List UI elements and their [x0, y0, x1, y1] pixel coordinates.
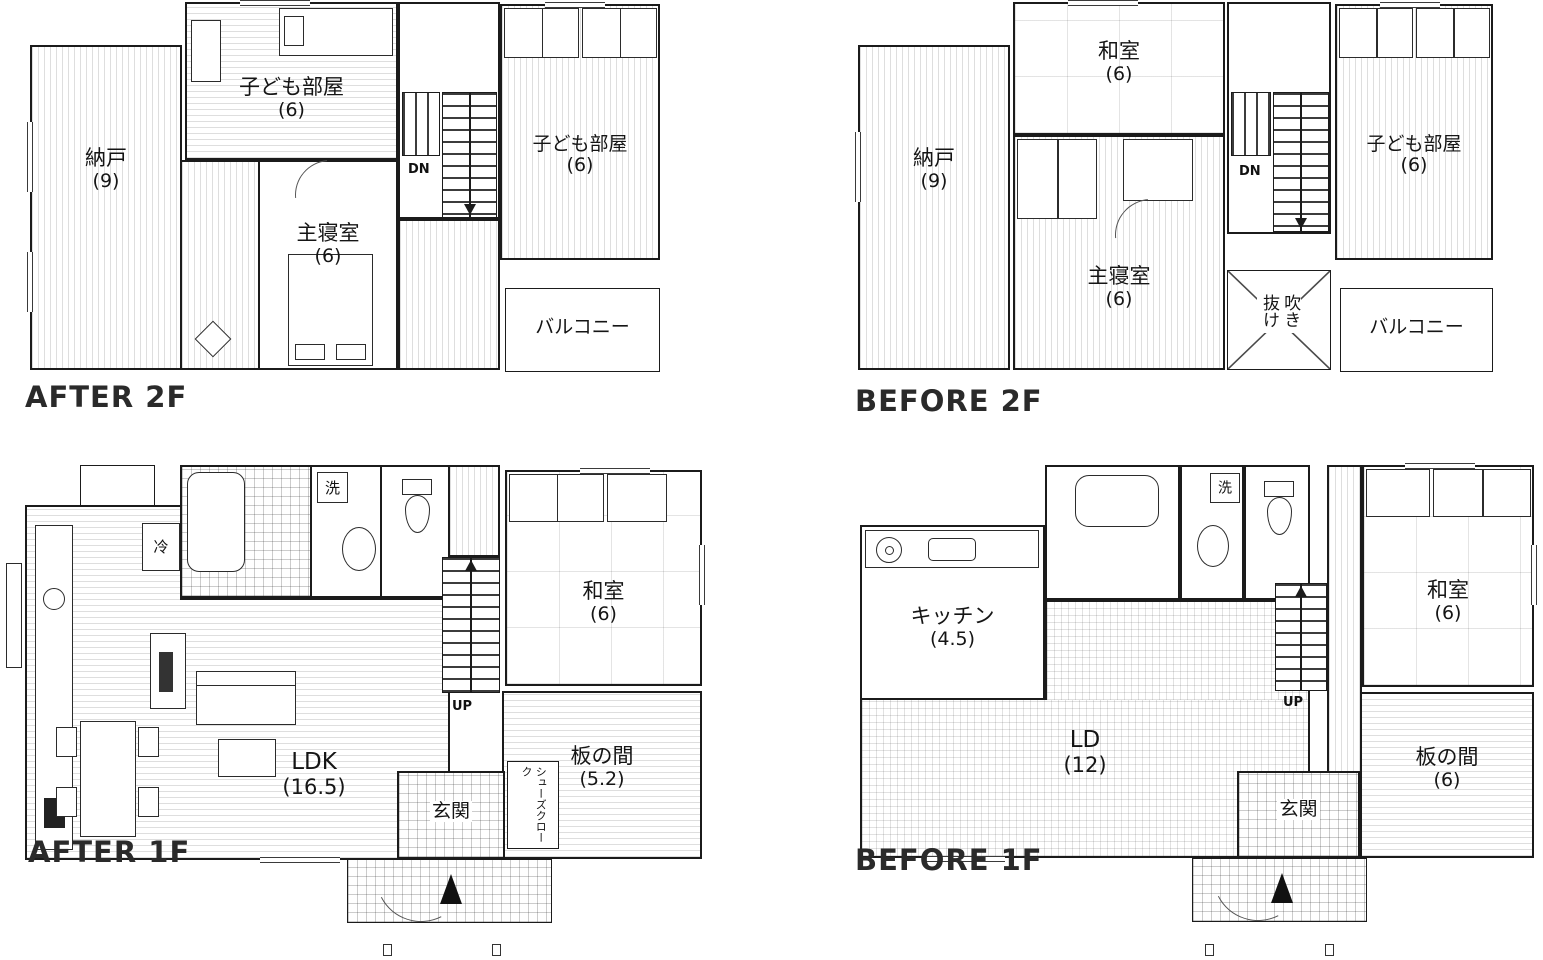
- room-name: LD: [1070, 728, 1101, 754]
- hallway: [448, 465, 500, 557]
- stool: [195, 321, 232, 358]
- balcony: バルコニー: [1340, 288, 1493, 372]
- room-master-bedroom: 主寝室 (6): [258, 160, 398, 370]
- room-kids-room-right: 子ども部屋 (6): [500, 4, 660, 260]
- stair-rail: [469, 93, 471, 217]
- plan-caption-after-1f: AFTER 1F: [28, 835, 190, 869]
- room-size: (12): [1063, 754, 1106, 778]
- bathtub: [187, 472, 245, 572]
- kitchen-sink: [928, 538, 976, 561]
- tv-board: [150, 633, 186, 709]
- room-name: バルコニー: [1369, 317, 1464, 338]
- room-label: LD (12): [862, 728, 1308, 777]
- hallway: [398, 219, 500, 370]
- room-size: (6): [1434, 770, 1461, 791]
- closet: [1433, 469, 1531, 517]
- stairs-direction-label: UP: [452, 699, 472, 714]
- room-name: キッチン: [911, 605, 995, 629]
- room-label: バルコニー: [1341, 317, 1492, 338]
- washing-machine-label: 洗: [318, 477, 347, 498]
- room-size: (6): [315, 246, 342, 267]
- pillow: [336, 344, 366, 360]
- stairs-direction-label: UP: [1283, 695, 1303, 710]
- stairs: [442, 92, 497, 218]
- stairs: [442, 557, 500, 693]
- room-label: 子ども部屋 (6): [187, 76, 396, 121]
- stairs: [402, 92, 440, 156]
- room-wood-floor: 板の間 (6): [1360, 692, 1534, 858]
- window: [1068, 0, 1138, 6]
- shoe-closet: シューズクローク: [507, 761, 559, 849]
- window: [1405, 463, 1475, 469]
- room-japanese-room: 和室 (6): [1362, 465, 1534, 687]
- washing-machine: 洗: [1210, 473, 1240, 503]
- closet: [1017, 139, 1097, 219]
- toilet-room: [1244, 465, 1310, 600]
- toilet-bowl: [405, 495, 430, 533]
- site-marker: [383, 944, 392, 956]
- room-name: 板の間: [1416, 746, 1479, 770]
- closet: [607, 474, 667, 522]
- room-name: 板の間: [571, 745, 634, 769]
- stairs: [1273, 92, 1329, 232]
- room-name: 子ども部屋: [239, 76, 344, 100]
- refrigerator: 冷: [142, 523, 180, 571]
- coffee-table: [218, 739, 276, 777]
- room-label: 吹き抜け: [1228, 289, 1330, 333]
- closet: [582, 8, 657, 58]
- stairs: [1275, 583, 1327, 691]
- desk: [191, 20, 221, 82]
- room-size: (4.5): [930, 629, 975, 650]
- room-living-dining: [1045, 600, 1310, 700]
- window: [580, 468, 650, 474]
- shoe-closet-label: シューズクローク: [519, 766, 548, 846]
- stairwell: DN: [398, 2, 500, 219]
- kitchen-sink: [43, 588, 65, 610]
- room-label: 納戸 (9): [32, 147, 180, 192]
- toilet-bowl: [1267, 497, 1292, 535]
- room-label: 板の間 (6): [1362, 746, 1532, 791]
- closet: [1339, 8, 1413, 58]
- room-name: 納戸: [85, 147, 127, 171]
- plan-caption-after-2f: AFTER 2F: [25, 380, 187, 414]
- floor-plan-after-1f: 洗 LDK (16.5) 冷 UP: [20, 465, 720, 960]
- room-name: 和室: [1427, 579, 1469, 603]
- toilet-room: [380, 465, 450, 598]
- room-label: 和室 (6): [1364, 579, 1532, 624]
- room-kids-room-top: 子ども部屋 (6): [185, 2, 398, 160]
- room-label: 主寝室 (6): [1015, 265, 1223, 310]
- kitchen-counter: [865, 530, 1039, 568]
- room-label: 主寝室 (6): [260, 222, 396, 267]
- room-size: (9): [921, 171, 948, 192]
- entrance-porch: [347, 859, 552, 923]
- room-name: 子ども部屋: [1366, 134, 1461, 155]
- room-master-bedroom: 主寝室 (6): [1013, 135, 1225, 370]
- window: [855, 132, 861, 202]
- window: [27, 252, 33, 312]
- floor-plan-after-2f: 納戸 (9) 子ども部屋 (6) 主寝室 (6) DN: [25, 2, 665, 378]
- room-size: (6): [1106, 64, 1133, 85]
- room-name: 子ども部屋: [532, 134, 627, 155]
- hallway: [180, 160, 260, 370]
- room-size: (16.5): [282, 776, 345, 800]
- room-name: 和室: [1098, 40, 1140, 64]
- pillow: [284, 16, 304, 46]
- stair-arrow-icon: [1295, 218, 1307, 229]
- room-size: (9): [93, 171, 120, 192]
- pillow: [295, 344, 325, 360]
- room-label: バルコニー: [506, 317, 659, 338]
- bathtub: [1075, 475, 1159, 527]
- plan-caption-before-1f: BEFORE 1F: [855, 843, 1043, 877]
- room-name: 吹き抜け: [1257, 289, 1302, 333]
- bed: [288, 254, 373, 366]
- floor-plan-before-2f: 納戸 (9) 和室 (6) 主寝室 (6) DN 吹き抜け: [853, 2, 1513, 378]
- room-size: (6): [1401, 155, 1428, 176]
- room-name: 主寝室: [1088, 265, 1151, 289]
- room-size: (5.2): [579, 769, 624, 790]
- room-kids-room: 子ども部屋 (6): [1335, 4, 1493, 260]
- room-name: 玄関: [1277, 799, 1319, 820]
- stair-arrow-icon: [464, 204, 476, 215]
- washroom: 洗: [310, 465, 382, 598]
- stair-rail: [470, 558, 472, 692]
- room-japanese-room: 和室 (6): [1013, 2, 1225, 135]
- room-name: LDK: [291, 750, 337, 776]
- room-label: 子ども部屋 (6): [1337, 134, 1491, 177]
- window: [240, 0, 310, 6]
- washroom: 洗: [1180, 465, 1244, 600]
- bathroom: [1045, 465, 1180, 600]
- dining-chair: [56, 727, 77, 757]
- room-label: キッチン (4.5): [862, 605, 1043, 650]
- bay-window: [6, 563, 22, 668]
- dining-chair: [56, 787, 77, 817]
- room-japanese-room: 和室 (6): [505, 470, 702, 686]
- room-size: (6): [590, 604, 617, 625]
- stair-rail: [1300, 93, 1302, 231]
- plan-caption-before-2f: BEFORE 2F: [855, 384, 1043, 418]
- closet: [1366, 469, 1430, 517]
- floor-plan-before-1f: キッチン (4.5) 洗 LD (12) UP 和室 (6): [845, 465, 1543, 960]
- washing-machine-label: 洗: [1211, 478, 1239, 498]
- closet: [504, 8, 579, 58]
- stair-rail: [1300, 584, 1302, 690]
- dining-chair: [138, 787, 159, 817]
- stair-arrow-icon: [465, 560, 477, 571]
- entrance-porch: [1192, 858, 1367, 922]
- site-marker: [1325, 944, 1334, 956]
- room-size: (6): [567, 155, 594, 176]
- room-name: 玄関: [430, 801, 472, 822]
- window: [1531, 545, 1537, 605]
- sink-basin: [342, 527, 376, 571]
- stove: [876, 537, 902, 563]
- stair-arrow-icon: [1295, 586, 1307, 597]
- room-size: (6): [1435, 603, 1462, 624]
- room-label: 玄関: [399, 801, 503, 822]
- room-label: 子ども部屋 (6): [502, 134, 658, 177]
- site-marker: [1205, 944, 1214, 956]
- room-name: 主寝室: [297, 222, 360, 246]
- room-label: 和室 (6): [507, 580, 700, 625]
- room-size: (6): [278, 100, 305, 121]
- dining-table: [80, 721, 136, 837]
- sofa: [196, 671, 296, 725]
- balcony: バルコニー: [505, 288, 660, 372]
- room-void: 吹き抜け: [1227, 270, 1331, 370]
- window: [699, 545, 705, 605]
- stairs-direction-label: DN: [1239, 164, 1261, 179]
- closet: [1123, 139, 1193, 201]
- stairwell: DN: [1227, 2, 1331, 234]
- room-name: 和室: [583, 580, 625, 604]
- refrigerator-label: 冷: [143, 536, 179, 557]
- rear-entry: [80, 465, 155, 507]
- toilet-tank: [402, 479, 432, 495]
- window: [27, 122, 33, 192]
- room-storage: 納戸 (9): [858, 45, 1010, 370]
- room-name: 納戸: [913, 147, 955, 171]
- window: [545, 2, 605, 8]
- closet: [1416, 8, 1490, 58]
- stairs: [1231, 92, 1271, 156]
- room-size: (6): [1106, 289, 1133, 310]
- room-storage: 納戸 (9): [30, 45, 182, 370]
- bathroom: [180, 465, 312, 598]
- window: [260, 857, 340, 863]
- floor-plan-sheet: { "page": { "background": "#ffffff", "wa…: [0, 0, 1543, 960]
- bed: [279, 8, 393, 56]
- room-label: 納戸 (9): [860, 147, 1008, 192]
- room-label: 和室 (6): [1015, 40, 1223, 85]
- stairs-direction-label: DN: [408, 162, 430, 177]
- window: [1380, 2, 1440, 8]
- room-label: 玄関: [1239, 799, 1358, 820]
- closet: [509, 474, 604, 522]
- sink-basin: [1197, 525, 1229, 567]
- site-marker: [492, 944, 501, 956]
- room-name: バルコニー: [535, 317, 630, 338]
- washing-machine: 洗: [317, 472, 348, 503]
- dining-chair: [138, 727, 159, 757]
- toilet-tank: [1264, 481, 1294, 497]
- kitchen: キッチン (4.5): [860, 525, 1045, 700]
